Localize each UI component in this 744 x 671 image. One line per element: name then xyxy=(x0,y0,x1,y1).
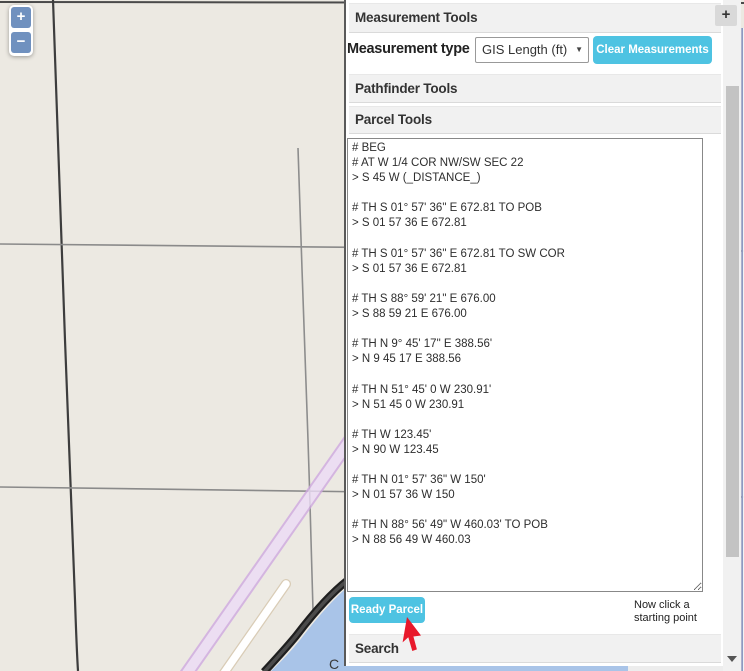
ready-parcel-button[interactable]: Ready Parcel xyxy=(349,597,425,623)
map-zoom-control: + − xyxy=(9,5,33,56)
right-edge-line xyxy=(741,28,743,671)
panel-expand-button[interactable]: + xyxy=(715,5,737,26)
section-header-measurement-tools[interactable]: Measurement Tools xyxy=(349,3,721,33)
zoom-in-button[interactable]: + xyxy=(11,7,31,28)
tools-sidebar: Measurement Tools Measurement type GIS L… xyxy=(344,0,723,666)
gis-application-window: C + − Measurement Tools Measurement type… xyxy=(0,0,744,671)
starting-point-hint: Now click astarting point xyxy=(634,599,718,624)
measurement-type-select[interactable]: GIS Length (ft) ▼ xyxy=(475,37,589,63)
water-label-text: C xyxy=(329,656,339,671)
hint-line-1: Now click a xyxy=(634,599,690,611)
clear-measurements-button[interactable]: Clear Measurements xyxy=(593,36,712,64)
measurement-type-value: GIS Length (ft) xyxy=(482,42,567,57)
panel-scrollbar[interactable] xyxy=(723,0,741,671)
parcel-traverse-input[interactable]: # BEG # AT W 1/4 COR NW/SW SEC 22 > S 45… xyxy=(347,138,703,592)
scrollbar-thumb[interactable] xyxy=(726,86,739,557)
chevron-down-icon: ▼ xyxy=(575,38,583,62)
section-header-search[interactable]: Search xyxy=(349,634,721,663)
zoom-out-button[interactable]: − xyxy=(11,32,31,53)
section-header-parcel-tools[interactable]: Parcel Tools xyxy=(349,106,721,134)
scrollbar-down-arrow-icon[interactable] xyxy=(727,656,737,662)
hint-line-2: starting point xyxy=(634,612,697,624)
section-header-pathfinder-tools[interactable]: Pathfinder Tools xyxy=(349,74,721,103)
measurement-type-label: Measurement type xyxy=(347,41,470,57)
